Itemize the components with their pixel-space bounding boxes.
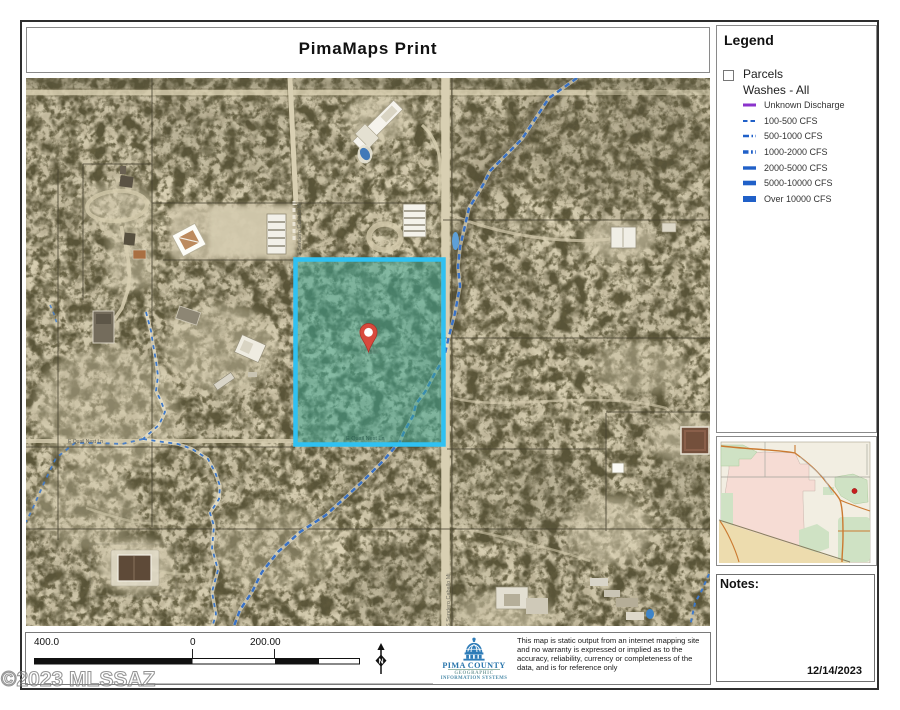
- svg-text:E Quail Nest Ln: E Quail Nest Ln: [68, 439, 103, 445]
- svg-text:N: N: [378, 658, 383, 665]
- svg-text:S Sendero Caballo Mi: S Sendero Caballo Mi: [297, 202, 303, 256]
- svg-text:S Sendero Caballo Mi: S Sendero Caballo Mi: [446, 573, 452, 626]
- svg-text:E Quail Nest Ln: E Quail Nest Ln: [346, 436, 385, 442]
